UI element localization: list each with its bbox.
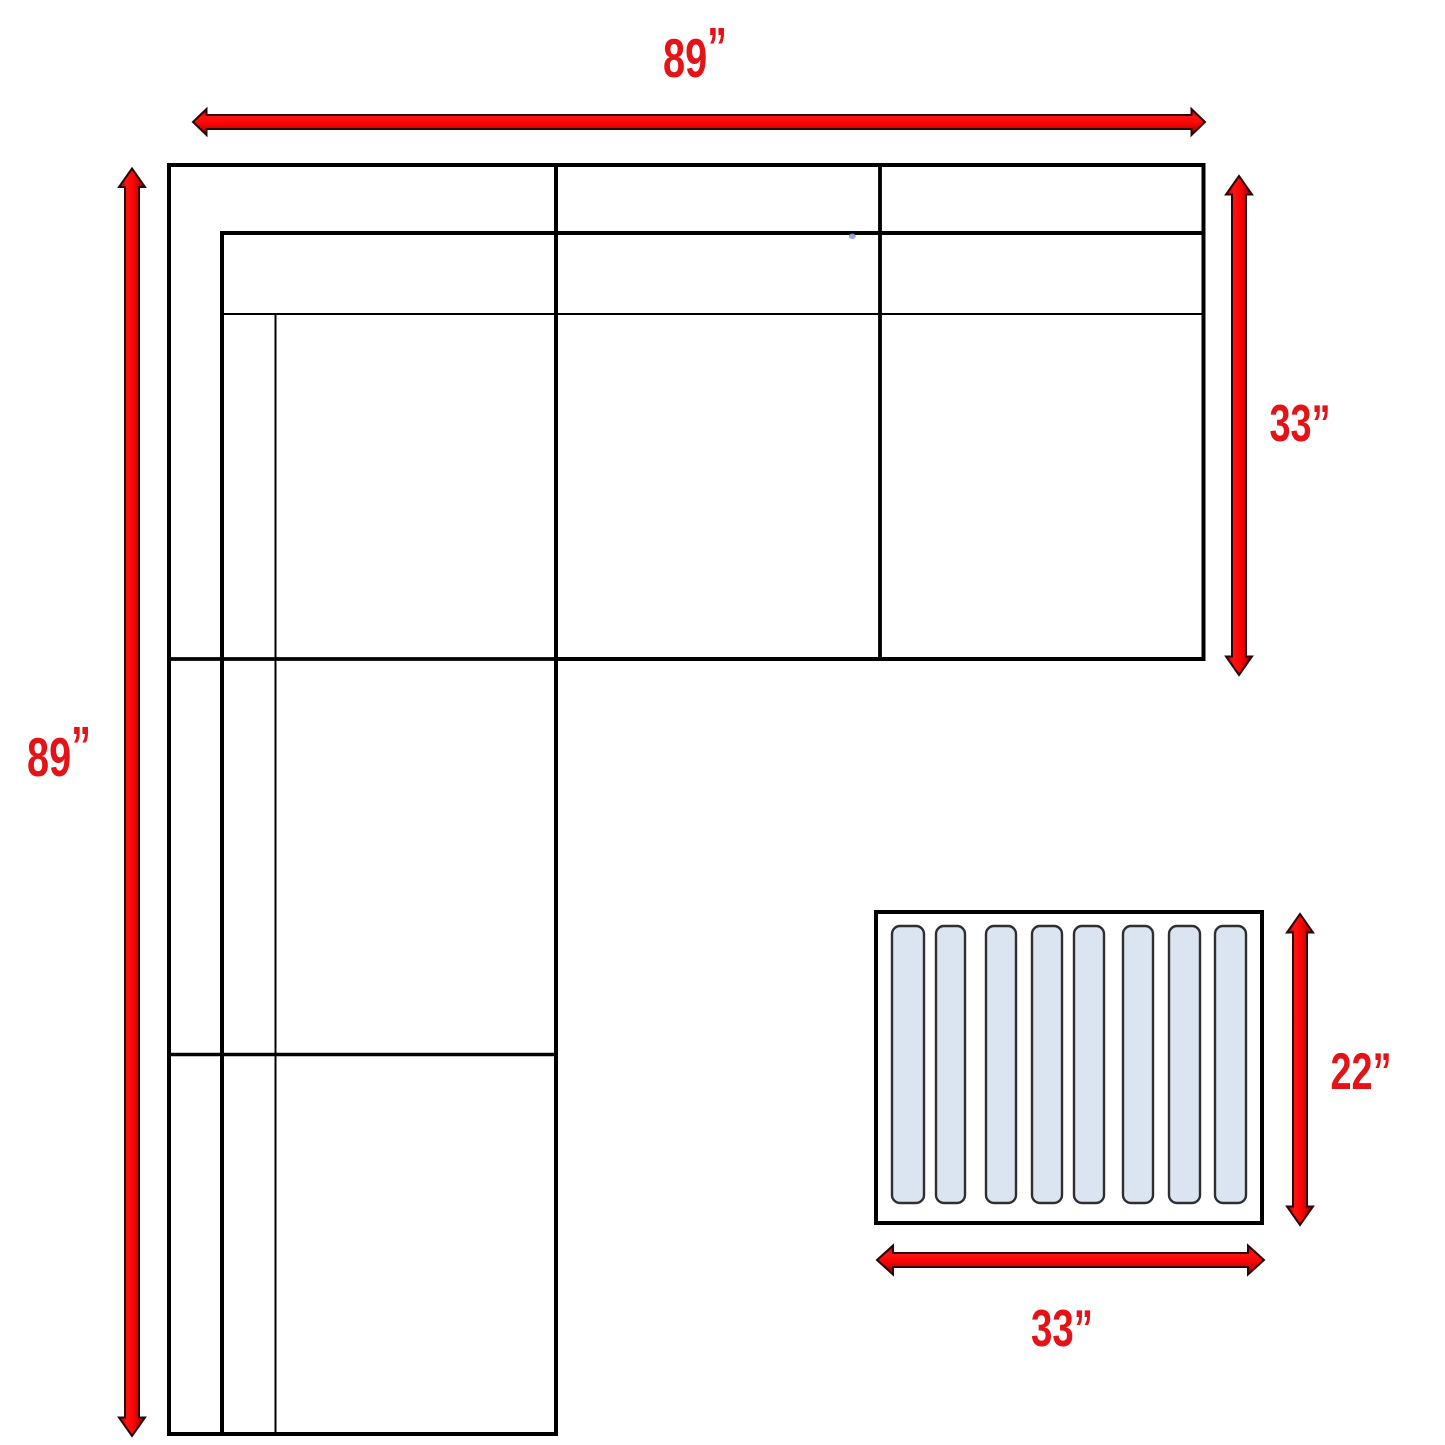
svg-text:33”: 33”	[1270, 395, 1331, 453]
svg-text:33”: 33”	[1031, 1300, 1093, 1358]
svg-text:22”: 22”	[1331, 1043, 1392, 1101]
